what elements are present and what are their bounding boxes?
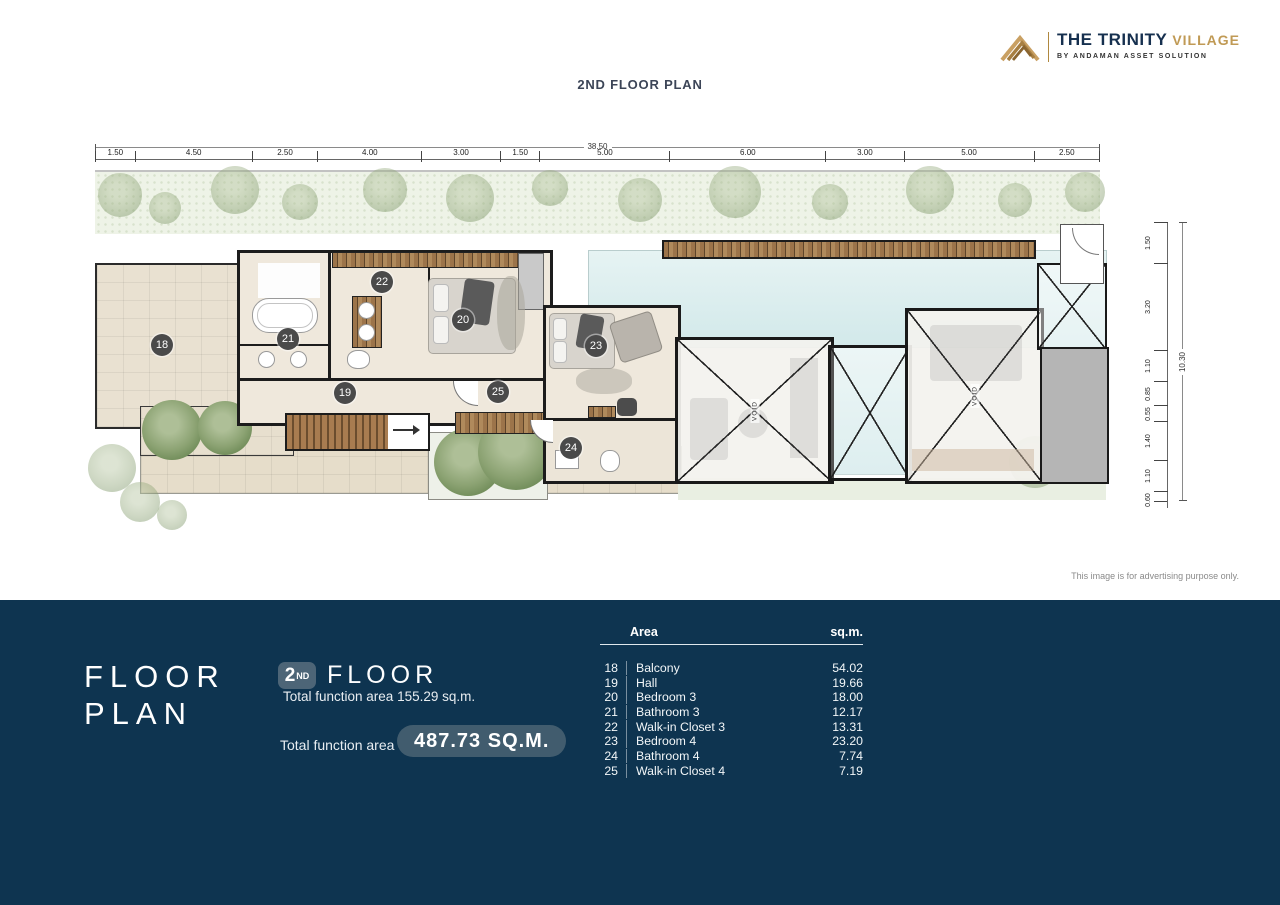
pillow (553, 318, 567, 340)
void-master: VOID (905, 308, 1044, 484)
room-marker-bathroom3: 21 (277, 328, 299, 350)
tree-icon (1065, 172, 1105, 212)
tree-icon (211, 166, 259, 214)
tree-icon (618, 178, 662, 222)
staircase (285, 413, 392, 451)
footer-heading: FLOOR PLAN (84, 658, 226, 732)
footer-heading-line2: PLAN (84, 695, 226, 732)
tree-icon (532, 170, 568, 206)
total-area-label: Total function area (280, 737, 394, 753)
toilet (347, 350, 370, 369)
void-label: VOID (750, 399, 759, 423)
floor-area-note: Total function area 155.29 sq.m. (283, 689, 475, 704)
stair-direction-arrow-head-icon (413, 425, 420, 435)
rug (576, 368, 632, 394)
table-row: 22Walk-in Closet 313.31 (600, 720, 863, 735)
tree-icon (709, 166, 761, 218)
tree-icon (120, 482, 160, 522)
tree-icon (998, 183, 1032, 217)
tree-icon (363, 168, 407, 212)
ghost-deck (912, 449, 1034, 471)
ghost-shelf (790, 358, 818, 458)
tree-icon (282, 184, 318, 220)
area-table-header: Area sq.m. (600, 625, 863, 645)
tree-icon (906, 166, 954, 214)
toilet (600, 450, 620, 472)
table-row: 19Hall19.66 (600, 676, 863, 691)
table-row: 25Walk-in Closet 47.19 (600, 764, 863, 779)
pillow (433, 284, 449, 312)
void-living: VOID (675, 337, 834, 484)
room-marker-bedroom3: 20 (452, 309, 474, 331)
room-marker-closet4: 25 (487, 381, 509, 403)
disclaimer-text: This image is for advertising purpose on… (1071, 571, 1239, 581)
total-area-value-badge: 487.73 SQ.M. (397, 725, 566, 757)
tree-icon (98, 173, 142, 217)
tree-icon (157, 500, 187, 530)
void-label: VOID (970, 384, 979, 408)
table-row: 21Bathroom 312.17 (600, 705, 863, 720)
col-area: Area (630, 625, 658, 639)
floor-plan-page: 2ND FLOOR PLAN THE TRINITY VILLAGE BY AN… (0, 0, 1280, 905)
footer-heading-line1: FLOOR (84, 658, 226, 695)
table-row: 24Bathroom 47.74 (600, 749, 863, 764)
void-pool-gap (828, 345, 912, 481)
sink (290, 351, 307, 368)
ghost-bed (930, 325, 1022, 381)
shower-area (258, 263, 320, 298)
table-row: 18Balcony54.02 (600, 661, 863, 676)
ghost-sofa (690, 398, 728, 460)
rug (497, 276, 525, 350)
floor-word: FLOOR (327, 661, 438, 690)
tree-icon (812, 184, 848, 220)
area-table: Area sq.m. 18Balcony54.02 19Hall19.66 20… (600, 625, 863, 779)
room-marker-bedroom4: 23 (585, 335, 607, 357)
tree-icon (149, 192, 181, 224)
floor-number-badge: 2ND (278, 662, 316, 689)
dresser (588, 406, 616, 418)
tree-icon (142, 400, 202, 460)
pillow (553, 341, 567, 363)
armchair (617, 398, 637, 416)
floor-plan-drawing: VOID VOID 18 19 20 21 22 23 24 25 (0, 0, 1280, 600)
sink (258, 351, 275, 368)
room-marker-closet3: 22 (371, 271, 393, 293)
footer-panel: FLOOR PLAN 2ND FLOOR Total function area… (0, 600, 1280, 905)
pillow (433, 316, 449, 344)
bathtub-inner (257, 303, 313, 328)
sink (358, 302, 375, 319)
sink (358, 324, 375, 341)
stair-landing (388, 413, 430, 451)
roof-block (1040, 347, 1109, 484)
pergola-deck (662, 240, 1036, 259)
floor-title: 2ND FLOOR (278, 661, 438, 690)
tree-icon (446, 174, 494, 222)
room-marker-bathroom4: 24 (560, 437, 582, 459)
area-table-rows: 18Balcony54.02 19Hall19.66 20Bedroom 318… (600, 661, 863, 779)
wall (328, 250, 331, 381)
col-unit: sq.m. (830, 625, 863, 639)
wardrobe (332, 252, 542, 268)
room-marker-balcony: 18 (151, 334, 173, 356)
room-marker-hall: 19 (334, 382, 356, 404)
stair-direction-arrow-icon (393, 429, 415, 431)
table-row: 23Bedroom 423.20 (600, 734, 863, 749)
table-row: 20Bedroom 318.00 (600, 690, 863, 705)
